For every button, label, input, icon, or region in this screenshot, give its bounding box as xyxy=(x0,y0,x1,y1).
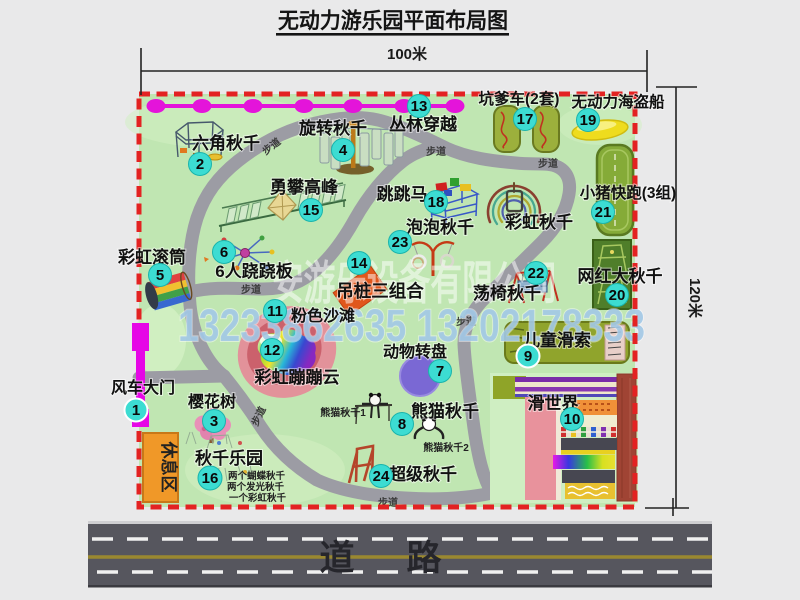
svg-text:路: 路 xyxy=(406,539,442,578)
svg-text:彩虹滚筒: 彩虹滚筒 xyxy=(117,247,186,267)
svg-text:4: 4 xyxy=(339,142,348,159)
svg-text:熊猫秋千1: 熊猫秋千1 xyxy=(320,406,366,419)
svg-text:网红大秋千: 网红大秋千 xyxy=(578,266,663,286)
svg-text:13: 13 xyxy=(411,98,428,115)
svg-text:22: 22 xyxy=(528,265,545,282)
svg-text:无动力海盗船: 无动力海盗船 xyxy=(570,92,665,111)
svg-text:19: 19 xyxy=(580,112,597,129)
svg-text:风车大门: 风车大门 xyxy=(111,378,175,397)
svg-text:熊猫秋千2: 熊猫秋千2 xyxy=(423,441,469,454)
svg-text:荡椅秋千: 荡椅秋千 xyxy=(473,283,541,303)
svg-text:旋转秋千: 旋转秋千 xyxy=(298,118,367,138)
svg-text:1: 1 xyxy=(132,402,140,419)
svg-text:吊桩三组合: 吊桩三组合 xyxy=(336,281,424,301)
svg-text:2: 2 xyxy=(196,156,204,173)
svg-text:18: 18 xyxy=(428,194,445,211)
svg-text:彩虹蹦蹦云: 彩虹蹦蹦云 xyxy=(254,367,340,387)
svg-text:9: 9 xyxy=(524,348,532,365)
svg-text:21: 21 xyxy=(595,204,612,221)
svg-text:23: 23 xyxy=(392,234,409,251)
svg-text:8: 8 xyxy=(398,416,406,433)
svg-text:20: 20 xyxy=(609,287,626,304)
svg-text:休息区: 休息区 xyxy=(159,441,179,493)
svg-text:粉色沙滩: 粉色沙滩 xyxy=(291,306,355,325)
svg-text:泡泡秋千: 泡泡秋千 xyxy=(406,217,474,237)
svg-text:秋千乐园: 秋千乐园 xyxy=(195,448,263,468)
svg-text:5: 5 xyxy=(156,267,164,284)
svg-text:超级秋千: 超级秋千 xyxy=(389,464,457,484)
svg-text:步道: 步道 xyxy=(538,157,558,170)
svg-text:勇攀高峰: 勇攀高峰 xyxy=(270,177,339,197)
svg-text:步道: 步道 xyxy=(426,145,446,158)
svg-text:16: 16 xyxy=(202,470,219,487)
svg-text:樱花树: 樱花树 xyxy=(188,392,236,411)
svg-text:动物转盘: 动物转盘 xyxy=(383,342,447,361)
svg-text:无动力游乐园平面布局图: 无动力游乐园平面布局图 xyxy=(278,8,508,33)
svg-text:一个彩虹秋千: 一个彩虹秋千 xyxy=(229,492,287,504)
svg-text:彩虹秋千: 彩虹秋千 xyxy=(504,212,573,232)
svg-text:24: 24 xyxy=(373,468,390,485)
svg-text:100米: 100米 xyxy=(387,45,428,63)
svg-text:6人跷跷板: 6人跷跷板 xyxy=(215,261,293,281)
svg-text:两个发光秋千: 两个发光秋千 xyxy=(227,481,285,493)
svg-text:15: 15 xyxy=(303,202,320,219)
svg-text:道: 道 xyxy=(319,539,354,578)
svg-text:跳跳马: 跳跳马 xyxy=(377,184,428,204)
svg-text:6: 6 xyxy=(220,244,228,261)
svg-text:10: 10 xyxy=(564,411,581,428)
svg-text:14: 14 xyxy=(351,255,368,272)
svg-text:12: 12 xyxy=(264,342,281,359)
svg-text:小猪快跑(3组): 小猪快跑(3组) xyxy=(580,183,676,202)
svg-text:11: 11 xyxy=(267,303,283,320)
svg-text:两个蝴蝶秋千: 两个蝴蝶秋千 xyxy=(228,470,286,482)
svg-text:7: 7 xyxy=(436,363,444,380)
svg-text:17: 17 xyxy=(517,111,534,128)
svg-text:3: 3 xyxy=(210,413,218,430)
svg-text:坑爹车(2套): 坑爹车(2套) xyxy=(479,89,560,108)
svg-text:步道: 步道 xyxy=(241,283,261,296)
svg-text:熊猫秋千: 熊猫秋千 xyxy=(411,401,479,421)
svg-text:120米: 120米 xyxy=(686,278,704,319)
svg-text:六角秋千: 六角秋千 xyxy=(192,133,260,153)
